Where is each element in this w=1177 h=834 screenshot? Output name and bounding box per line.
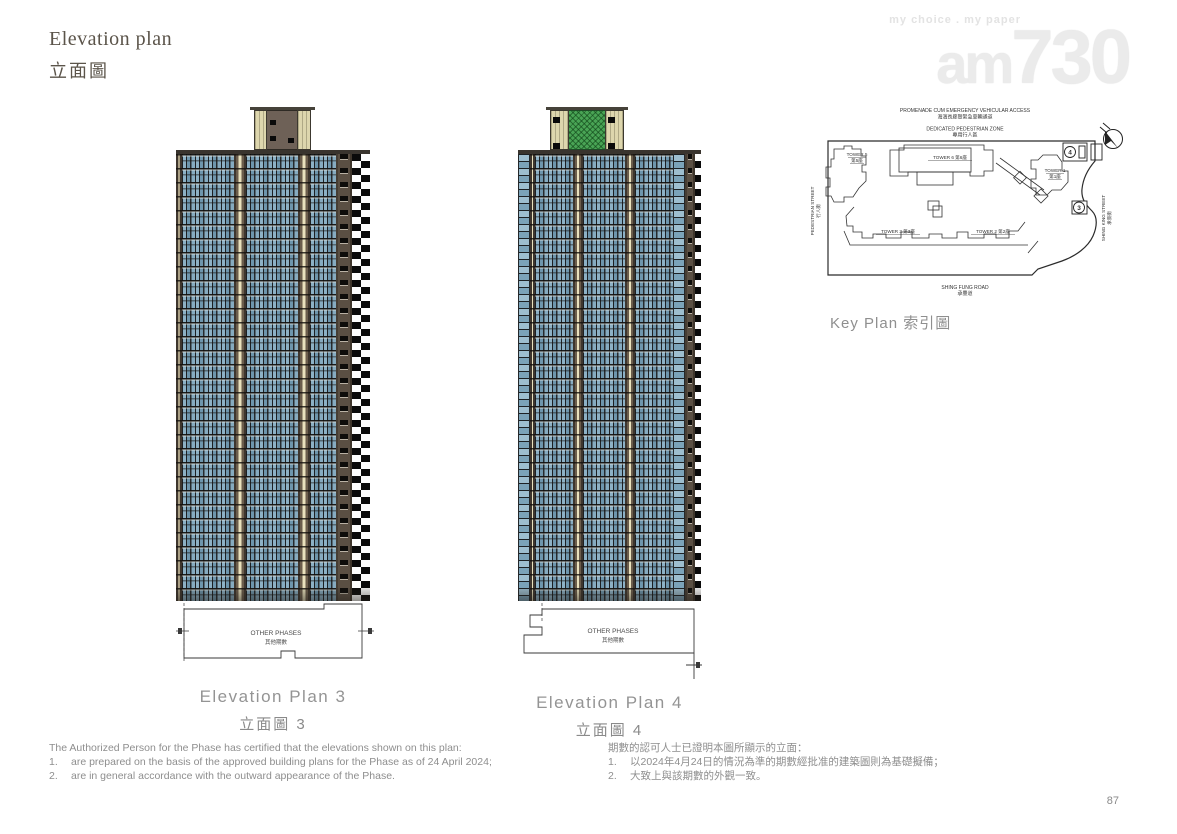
balcony-stack-inner xyxy=(361,154,370,601)
tower1-label-zh: 第1座 xyxy=(1049,173,1061,180)
tower5-label-zh: 第5座 xyxy=(851,157,863,164)
tower5-label-en: TOWER 5 xyxy=(847,152,868,157)
tower-facade-3 xyxy=(176,150,370,601)
page-title-zh: 立面圖 xyxy=(49,57,172,83)
balcony-stack-outer xyxy=(695,154,701,601)
facade-bay xyxy=(246,154,298,601)
side-wall-windows xyxy=(688,154,693,601)
shing-king-street-label-en: SHING KING STREET xyxy=(1101,195,1106,242)
facade-bay xyxy=(635,154,673,601)
other-phases-label-zh: 其他期數 xyxy=(265,638,288,646)
roof-side-panel xyxy=(254,110,267,150)
facade-glass-column xyxy=(673,154,685,601)
roof-side-panel xyxy=(550,110,569,150)
marker-4-number: 4 xyxy=(1068,150,1072,157)
roof-side-panel xyxy=(297,110,311,150)
tower-labels: TOWER 5 第5座 TOWER 6 第6座 TOWER 1 第1座 TOWE… xyxy=(847,152,1066,235)
facade-pier xyxy=(234,154,246,601)
note-text: 大致上與該期數的外觀一致。 xyxy=(630,769,767,783)
facade-side-wall xyxy=(685,154,695,601)
keyplan-label-promenade-zh: 海濱長廊暨緊急車輛通道 xyxy=(937,114,992,121)
note-text: are prepared on the basis of the approve… xyxy=(71,755,492,769)
facade-bay xyxy=(310,154,336,601)
other-phases-label-en: OTHER PHASES xyxy=(588,628,640,635)
elevation-3-caption-zh: 立面圖 3 xyxy=(176,713,370,734)
central-structure-1 xyxy=(928,201,939,210)
link-bridge-lines xyxy=(996,158,1044,195)
facade-bay xyxy=(182,154,234,601)
facade-side-wall xyxy=(336,154,352,601)
pedestrian-street-label-zh: 行人街 xyxy=(815,204,822,218)
notes-en-item: 2. are in general accordance with the ou… xyxy=(49,769,589,783)
facade-bay xyxy=(535,154,573,601)
roof-green-louver-panel xyxy=(569,110,605,150)
elevation-4-caption-zh: 立面圖 4 xyxy=(518,719,701,740)
page-title: Elevation plan xyxy=(49,28,172,51)
key-plan: PROMENADE CUM EMERGENCY VEHICULAR ACCESS… xyxy=(800,103,1130,333)
other-phases-label-en: OTHER PHASES xyxy=(251,630,303,637)
side-wall-windows xyxy=(340,154,347,601)
elevation-3-caption-block: Elevation Plan 3 立面圖 3 xyxy=(176,687,370,734)
note-number: 1. xyxy=(49,755,71,769)
roof-core-panel xyxy=(267,110,297,150)
note-text: are in general accordance with the outwa… xyxy=(71,769,395,783)
notes-zh-intro: 期數的認可人士已證明本圖所顯示的立面： xyxy=(608,741,1108,755)
tower-facade-4 xyxy=(518,150,701,601)
key-plan-drawing: PROMENADE CUM EMERGENCY VEHICULAR ACCESS… xyxy=(800,103,1130,303)
elevation-4-drawing: OTHER PHASES 其他期數 Elevation Plan 4 立面圖 4 xyxy=(518,110,701,740)
tower6-inner-block xyxy=(899,148,971,172)
certification-notes-en: The Authorized Person for the Phase has … xyxy=(49,741,589,783)
roof-structure-4 xyxy=(550,110,624,150)
watermark-brand: am730 xyxy=(859,26,1129,91)
marker-3-number: 3 xyxy=(1077,205,1081,212)
shing-fung-road-label-zh: 承豐道 xyxy=(957,290,972,297)
elevation-4-caption: Elevation Plan 4 xyxy=(518,693,701,713)
roof-side-panel xyxy=(605,110,624,150)
facade-bay xyxy=(583,154,625,601)
facade-pier xyxy=(298,154,310,601)
tower6-label: TOWER 6 第6座 xyxy=(933,154,967,161)
note-text: 以2024年4月24日的情況為準的期數經批准的建築圖則為基礎擬備； xyxy=(630,755,944,769)
key-plan-caption: Key Plan 索引圖 xyxy=(830,312,1130,333)
watermark-brand-am: am xyxy=(936,32,1011,95)
roof-structure-3 xyxy=(254,110,311,150)
tower6-lower-block xyxy=(917,172,953,185)
am730-watermark: my choice . my paper am730 xyxy=(859,14,1129,91)
elevation-4-caption-block: Elevation Plan 4 立面圖 4 xyxy=(518,693,701,740)
notes-en-intro: The Authorized Person for the Phase has … xyxy=(49,741,589,755)
facade-pier xyxy=(625,154,635,601)
other-phases-label-zh: 其他期數 xyxy=(602,636,625,644)
tower2-label: TOWER 2 第2座 xyxy=(976,228,1010,235)
tower1-label-en: TOWER 1 xyxy=(1045,168,1066,173)
notes-zh-item: 1. 以2024年4月24日的情況為準的期數經批准的建築圖則為基礎擬備； xyxy=(608,755,1108,769)
tower3-label: TOWER 3 第3座 xyxy=(881,228,915,235)
page-number: 87 xyxy=(1107,795,1119,807)
page-root: Elevation plan 立面圖 my choice . my paper … xyxy=(0,0,1177,834)
certification-notes-zh: 期數的認可人士已證明本圖所顯示的立面： 1. 以2024年4月24日的情況為準的… xyxy=(608,741,1108,783)
watermark-brand-730: 730 xyxy=(1011,15,1129,100)
elevation-3-caption: Elevation Plan 3 xyxy=(176,687,370,707)
base-outline-3: OTHER PHASES 其他期數 xyxy=(176,601,376,679)
notes-zh-item: 2. 大致上與該期數的外觀一致。 xyxy=(608,769,1108,783)
north-compass-icon xyxy=(1100,123,1123,149)
base-outline-4: OTHER PHASES 其他期數 xyxy=(518,601,708,685)
note-number: 1. xyxy=(608,755,630,769)
facade-glass-column xyxy=(518,154,530,601)
keyplan-label-promenade-en: PROMENADE CUM EMERGENCY VEHICULAR ACCESS xyxy=(900,108,1031,114)
notes-en-item: 1. are prepared on the basis of the appr… xyxy=(49,755,589,769)
note-number: 2. xyxy=(608,769,630,783)
site-boundary xyxy=(828,141,1096,275)
keyplan-label-pedestrian-zone-zh: 專用行人區 xyxy=(952,132,977,139)
facade-pier xyxy=(573,154,583,601)
elevation-3-drawing: OTHER PHASES 其他期數 Elevation Plan 3 立面圖 3 xyxy=(176,110,370,734)
central-structure-2 xyxy=(933,206,942,217)
page-title-block: Elevation plan 立面圖 xyxy=(49,28,172,83)
note-number: 2. xyxy=(49,769,71,783)
pedestrian-street-label-en: PEDESTRIAN STREET xyxy=(810,186,815,235)
balcony-stack-outer xyxy=(352,154,361,601)
shing-king-street-label-zh: 承景街 xyxy=(1106,211,1113,225)
